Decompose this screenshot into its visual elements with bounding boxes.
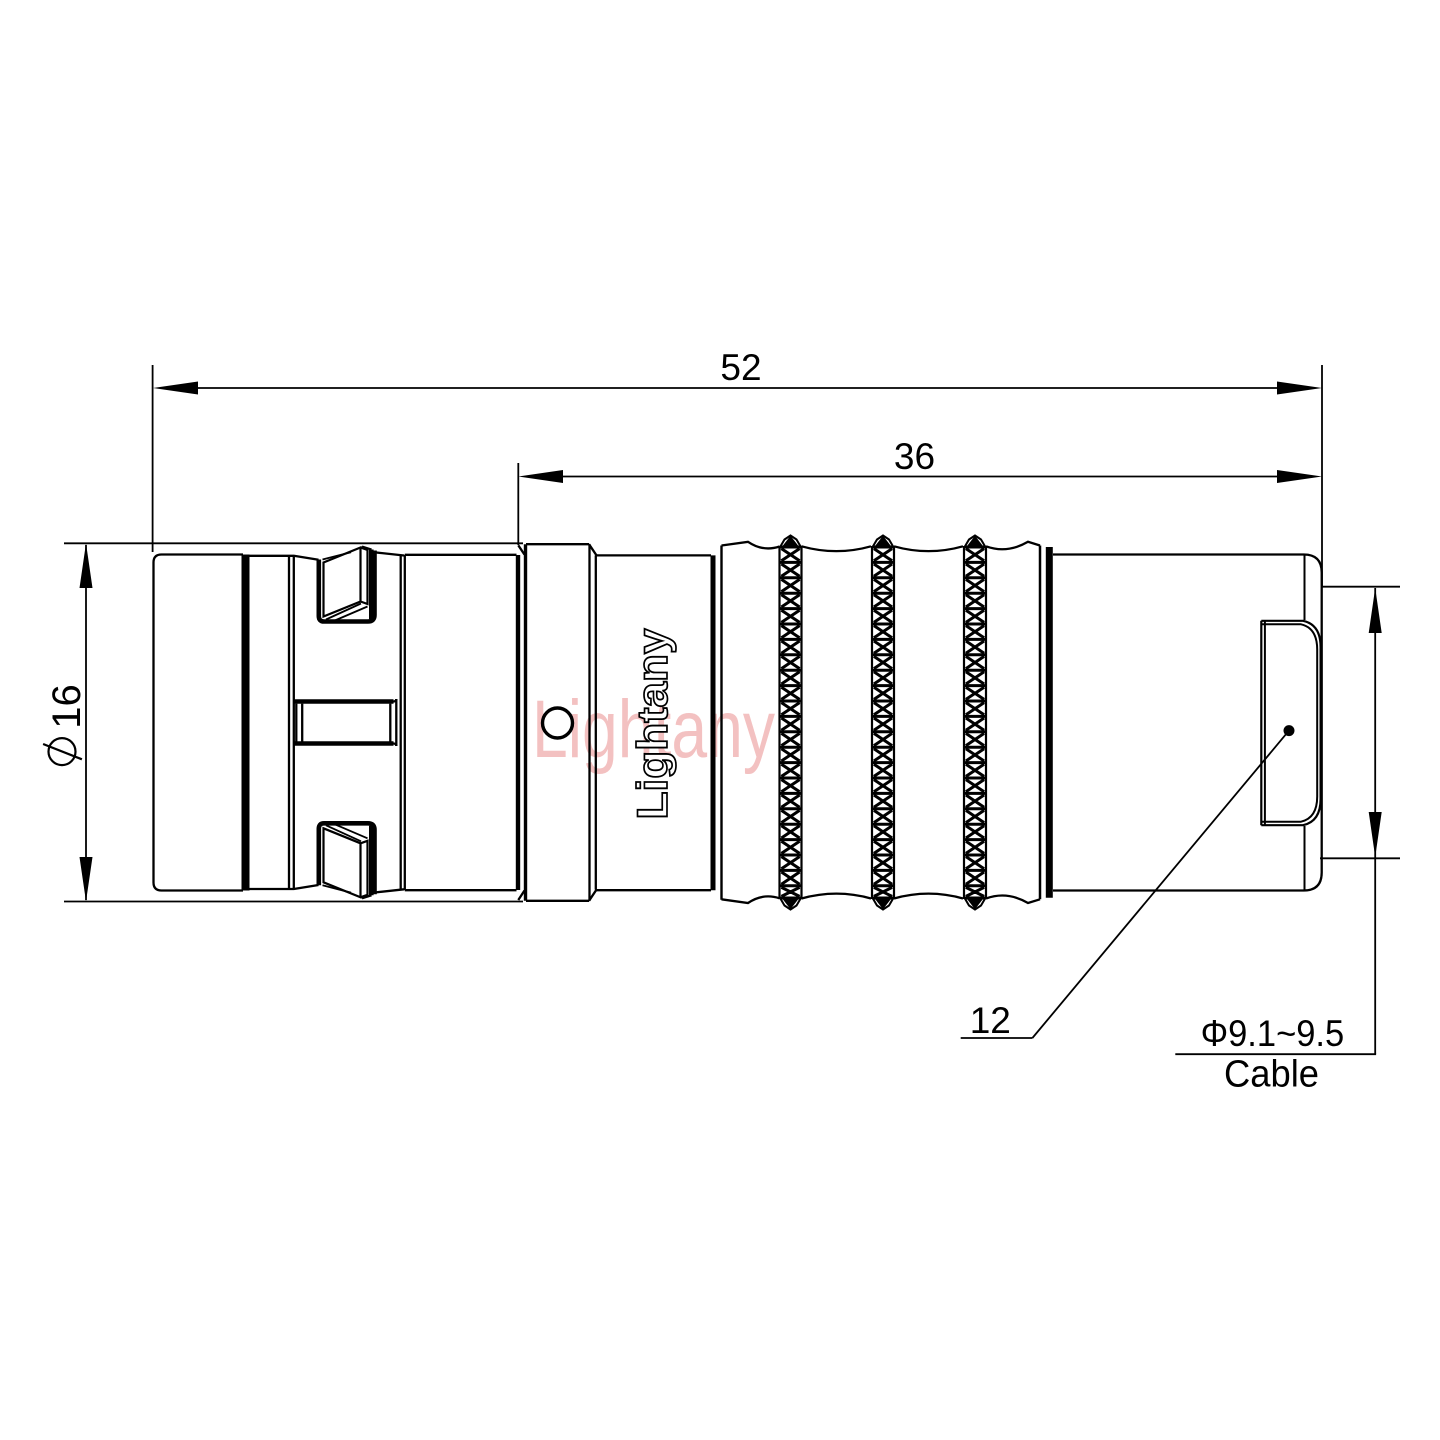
svg-text:Lightany: Lightany [629,628,677,819]
svg-text:Cable: Cable [1224,1054,1319,1096]
svg-text:16: 16 [45,684,89,729]
svg-text:12: 12 [970,1000,1011,1041]
svg-text:36: 36 [894,436,935,477]
svg-text:52: 52 [720,347,761,388]
svg-text:Φ9.1~9.5: Φ9.1~9.5 [1201,1013,1345,1054]
